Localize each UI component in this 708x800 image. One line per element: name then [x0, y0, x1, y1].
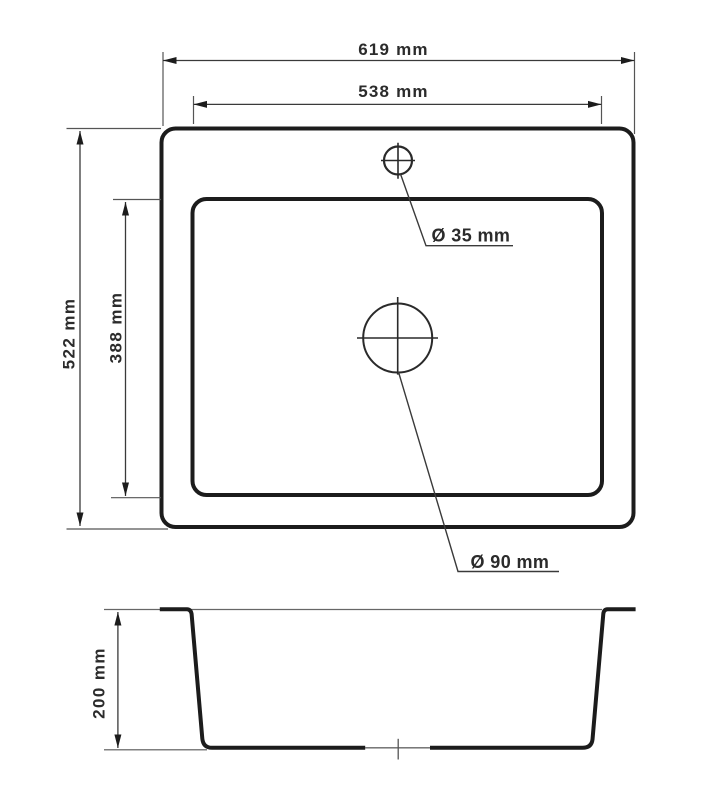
svg-text:200 mm: 200 mm — [90, 647, 109, 719]
svg-text:522 mm: 522 mm — [60, 298, 79, 370]
svg-text:619 mm: 619 mm — [358, 40, 429, 59]
svg-text:388 mm: 388 mm — [107, 292, 126, 364]
svg-text:Ø 90 mm: Ø 90 mm — [471, 552, 550, 572]
svg-text:Ø 35 mm: Ø 35 mm — [432, 226, 511, 246]
svg-text:538 mm: 538 mm — [358, 82, 429, 101]
